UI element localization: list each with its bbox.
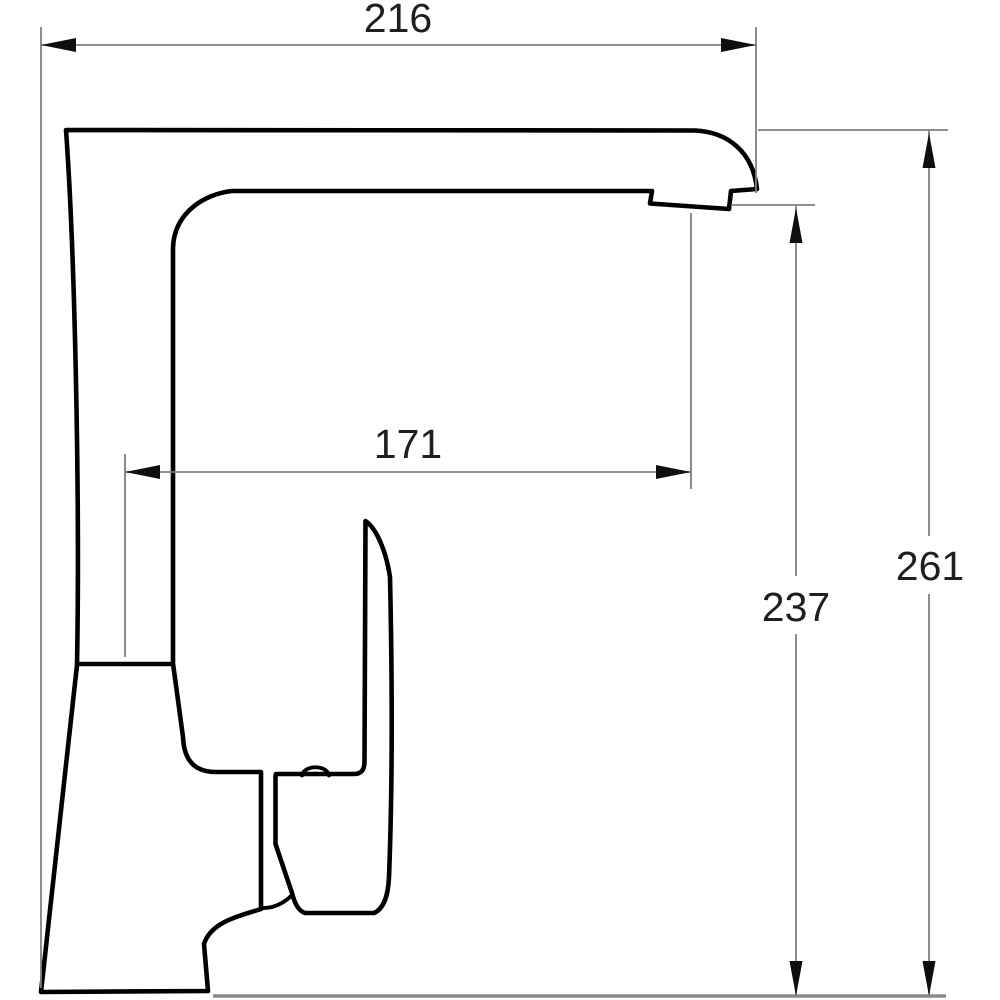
arrowhead-down xyxy=(790,961,803,996)
arrowhead-down xyxy=(923,961,936,996)
dim-overall-width: 216 xyxy=(41,0,756,988)
dim-spout-reach: 171 xyxy=(125,213,691,657)
faucet-body-outline xyxy=(41,130,757,992)
dim-label-overall-height: 261 xyxy=(896,543,964,589)
arrowhead-left xyxy=(41,38,76,52)
dim-overall-height: 261 xyxy=(758,130,964,996)
drawing-canvas: 216 171 237 261 xyxy=(0,0,1000,1000)
arrowhead-right xyxy=(721,38,756,52)
arrowhead-up xyxy=(790,208,803,243)
faucet-dimension-drawing: 216 171 237 261 xyxy=(0,0,1000,1000)
arrowhead-left xyxy=(125,465,160,479)
arrowhead-up xyxy=(923,133,936,168)
dim-label-spout-reach: 171 xyxy=(374,421,442,467)
handle-base-curve xyxy=(262,896,291,908)
dim-label-outlet-height: 237 xyxy=(762,584,830,630)
handle-outline xyxy=(276,521,392,913)
arrowhead-right xyxy=(656,465,691,479)
dim-label-overall-width: 216 xyxy=(364,0,432,41)
dim-outlet-height: 237 xyxy=(731,205,830,996)
faucet-outline-group xyxy=(41,130,757,992)
